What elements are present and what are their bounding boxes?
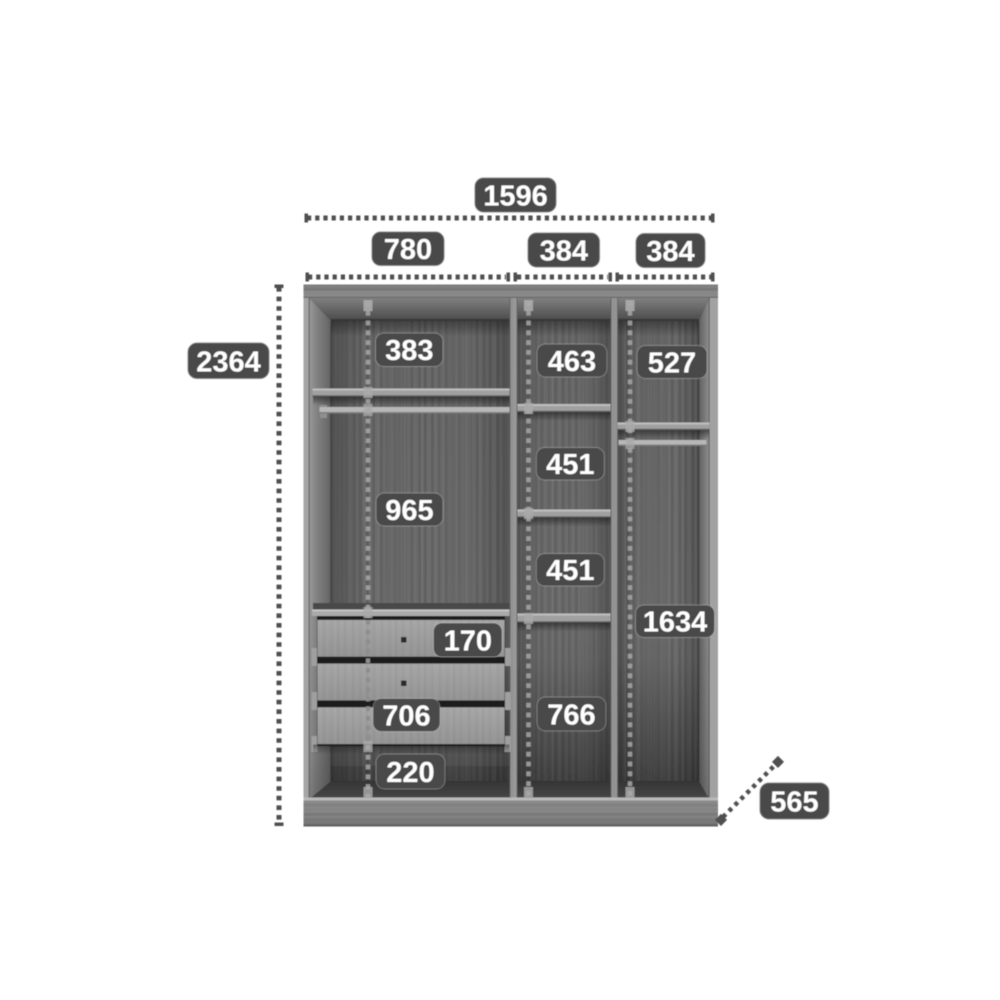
- svg-text:383: 383: [385, 335, 433, 367]
- svg-text:451: 451: [546, 555, 594, 587]
- svg-text:220: 220: [386, 757, 434, 789]
- svg-text:527: 527: [648, 347, 696, 379]
- svg-text:384: 384: [646, 236, 694, 268]
- svg-text:706: 706: [382, 700, 430, 732]
- svg-text:1634: 1634: [643, 607, 708, 639]
- svg-text:780: 780: [384, 234, 432, 266]
- svg-text:1596: 1596: [483, 181, 548, 213]
- svg-text:463: 463: [548, 346, 596, 378]
- svg-text:766: 766: [547, 699, 595, 731]
- svg-text:170: 170: [444, 625, 492, 657]
- svg-text:384: 384: [540, 235, 588, 267]
- svg-text:451: 451: [546, 449, 594, 481]
- svg-text:565: 565: [770, 787, 818, 819]
- svg-text:965: 965: [385, 495, 433, 527]
- svg-text:2364: 2364: [196, 346, 261, 378]
